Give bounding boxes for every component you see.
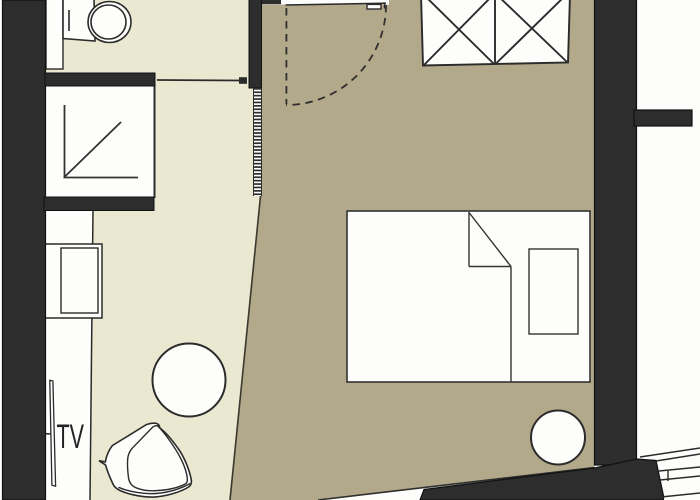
svg-text:TV: TV xyxy=(57,418,85,456)
